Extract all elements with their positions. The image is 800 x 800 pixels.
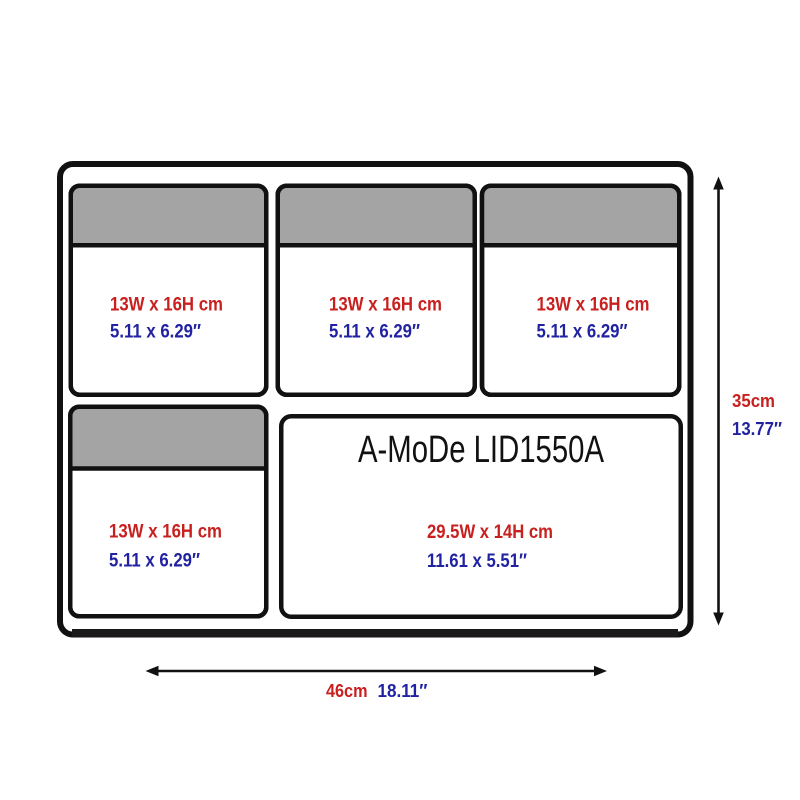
- svg-text:46cm: 46cm: [326, 681, 368, 701]
- svg-text:13W x 16H cm: 13W x 16H cm: [110, 295, 223, 316]
- svg-text:11.61 x 5.51″: 11.61 x 5.51″: [427, 550, 527, 572]
- svg-text:5.11 x 6.29″: 5.11 x 6.29″: [537, 321, 628, 343]
- svg-text:A-MoDe LID1550A: A-MoDe LID1550A: [358, 429, 605, 471]
- svg-text:13.77″: 13.77″: [732, 419, 782, 439]
- svg-text:13W x 16H cm: 13W x 16H cm: [329, 295, 442, 316]
- svg-text:5.11 x 6.29″: 5.11 x 6.29″: [109, 550, 200, 572]
- svg-text:5.11 x 6.29″: 5.11 x 6.29″: [329, 321, 420, 343]
- svg-text:5.11 x 6.29″: 5.11 x 6.29″: [110, 321, 201, 343]
- svg-text:18.11″: 18.11″: [378, 681, 428, 701]
- svg-text:35cm: 35cm: [732, 391, 775, 411]
- svg-text:13W x 16H cm: 13W x 16H cm: [109, 522, 222, 543]
- svg-text:13W x 16H cm: 13W x 16H cm: [537, 295, 650, 316]
- svg-text:29.5W x 14H cm: 29.5W x 14H cm: [427, 522, 553, 543]
